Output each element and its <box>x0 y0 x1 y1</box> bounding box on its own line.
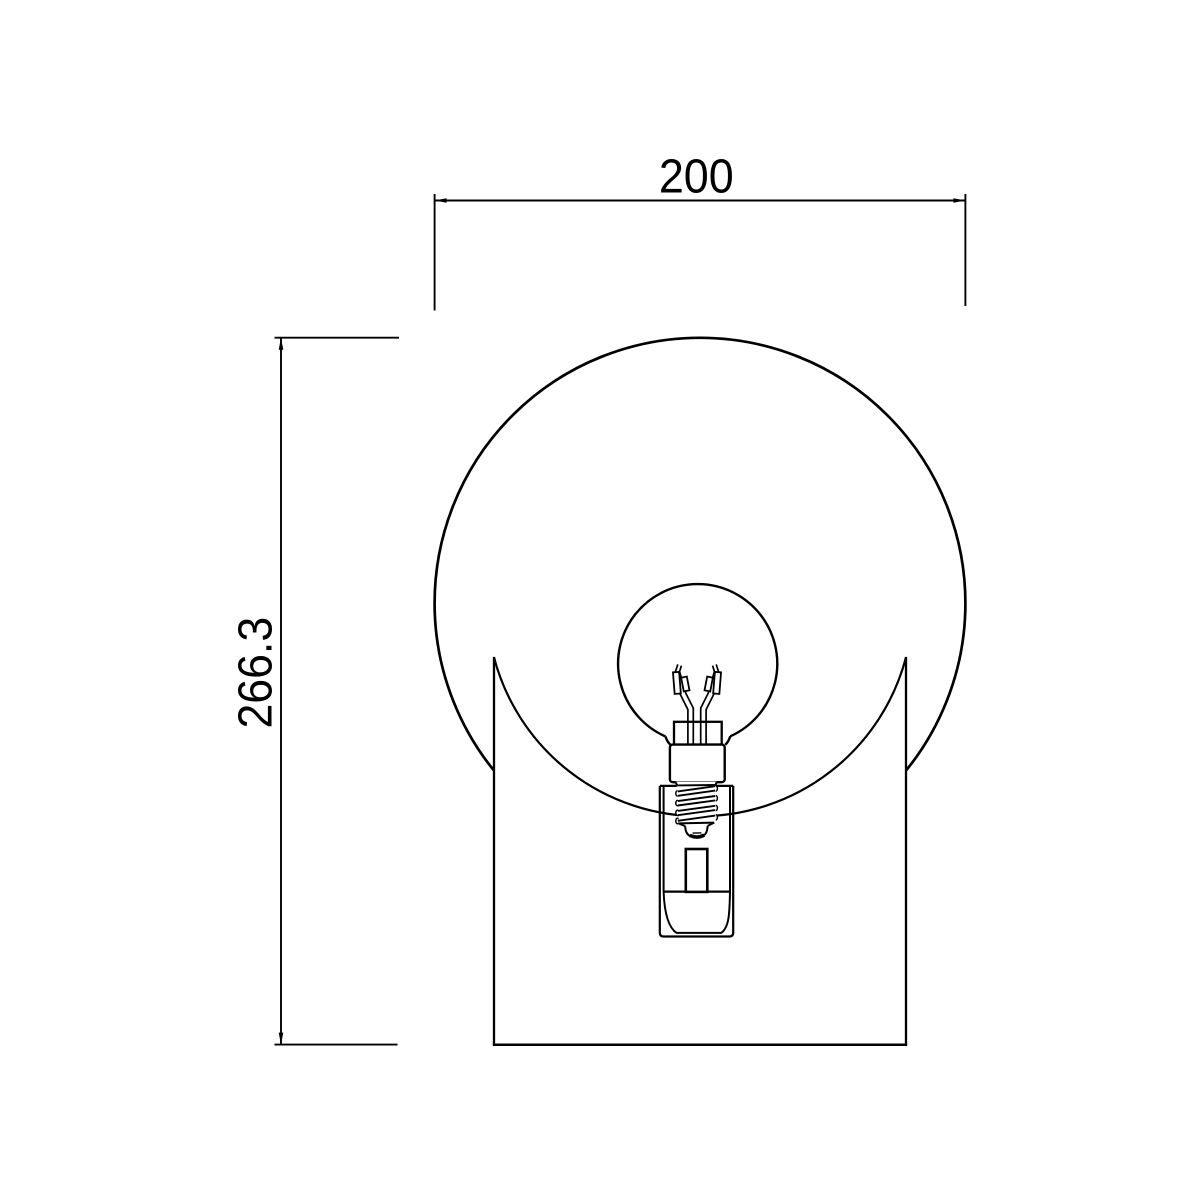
svg-text:200: 200 <box>659 149 734 203</box>
svg-text:266.3: 266.3 <box>228 617 282 729</box>
